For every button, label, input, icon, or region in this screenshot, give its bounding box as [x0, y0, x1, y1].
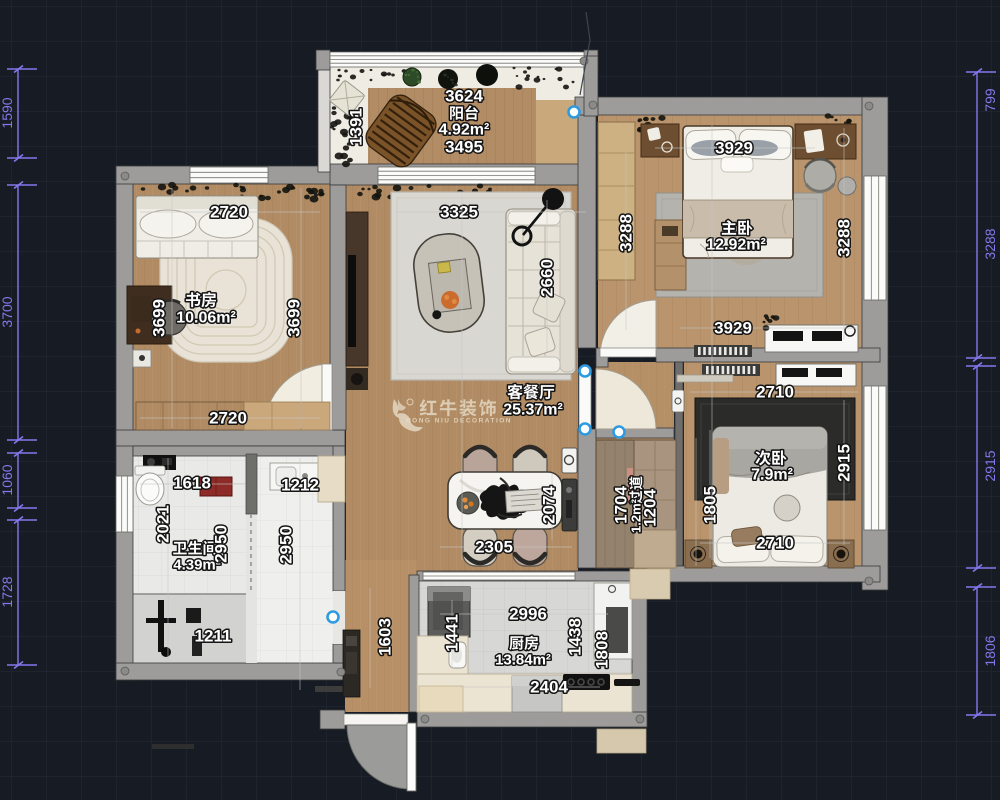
svg-text:2915: 2915 [982, 450, 998, 481]
svg-text:2074: 2074 [540, 486, 559, 524]
svg-text:1806: 1806 [982, 635, 998, 666]
svg-text:1391: 1391 [347, 108, 366, 146]
svg-text:3288: 3288 [982, 228, 998, 259]
svg-text:1211: 1211 [195, 627, 232, 646]
svg-text:1590: 1590 [0, 97, 15, 128]
svg-text:3700: 3700 [0, 296, 15, 327]
svg-text:2660: 2660 [538, 259, 557, 297]
svg-text:4.92m²: 4.92m² [439, 122, 490, 139]
svg-text:1438: 1438 [566, 618, 585, 656]
svg-text:2720: 2720 [210, 203, 248, 222]
svg-text:12.92m²: 12.92m² [706, 237, 766, 254]
svg-text:3699: 3699 [285, 299, 304, 337]
svg-text:3495: 3495 [445, 138, 483, 157]
svg-text:HONG NIU DECORATION: HONG NIU DECORATION [406, 418, 512, 425]
svg-text:1060: 1060 [0, 464, 15, 495]
svg-text:2950: 2950 [277, 526, 296, 564]
svg-text:25.37m²: 25.37m² [503, 402, 563, 419]
svg-text:3288: 3288 [835, 219, 854, 257]
svg-text:1728: 1728 [0, 576, 15, 607]
svg-text:1808: 1808 [593, 631, 612, 669]
svg-text:3699: 3699 [150, 299, 169, 337]
svg-text:2404: 2404 [530, 678, 568, 697]
svg-text:1204: 1204 [641, 489, 660, 527]
svg-text:2996: 2996 [509, 605, 547, 624]
svg-text:1212: 1212 [281, 476, 319, 495]
svg-text:3288: 3288 [617, 214, 636, 252]
svg-text:2915: 2915 [835, 444, 854, 482]
svg-text:2710: 2710 [756, 534, 794, 553]
svg-text:10.06m²: 10.06m² [176, 310, 236, 327]
svg-text:3624: 3624 [445, 87, 483, 106]
svg-text:3929: 3929 [714, 319, 752, 338]
svg-text:2305: 2305 [475, 538, 513, 557]
svg-text:2710: 2710 [756, 383, 794, 402]
svg-text:1441: 1441 [443, 614, 462, 652]
svg-text:2950: 2950 [212, 525, 231, 563]
svg-text:13.84m²: 13.84m² [495, 652, 551, 669]
svg-text:799: 799 [982, 88, 998, 112]
svg-text:2720: 2720 [209, 409, 247, 428]
svg-text:1805: 1805 [701, 486, 720, 524]
svg-text:3325: 3325 [440, 203, 478, 222]
svg-text:7.9m²: 7.9m² [751, 467, 793, 484]
svg-text:2021: 2021 [154, 505, 173, 543]
svg-text:3929: 3929 [715, 139, 753, 158]
svg-text:1603: 1603 [376, 618, 395, 656]
svg-text:1618: 1618 [173, 474, 211, 493]
